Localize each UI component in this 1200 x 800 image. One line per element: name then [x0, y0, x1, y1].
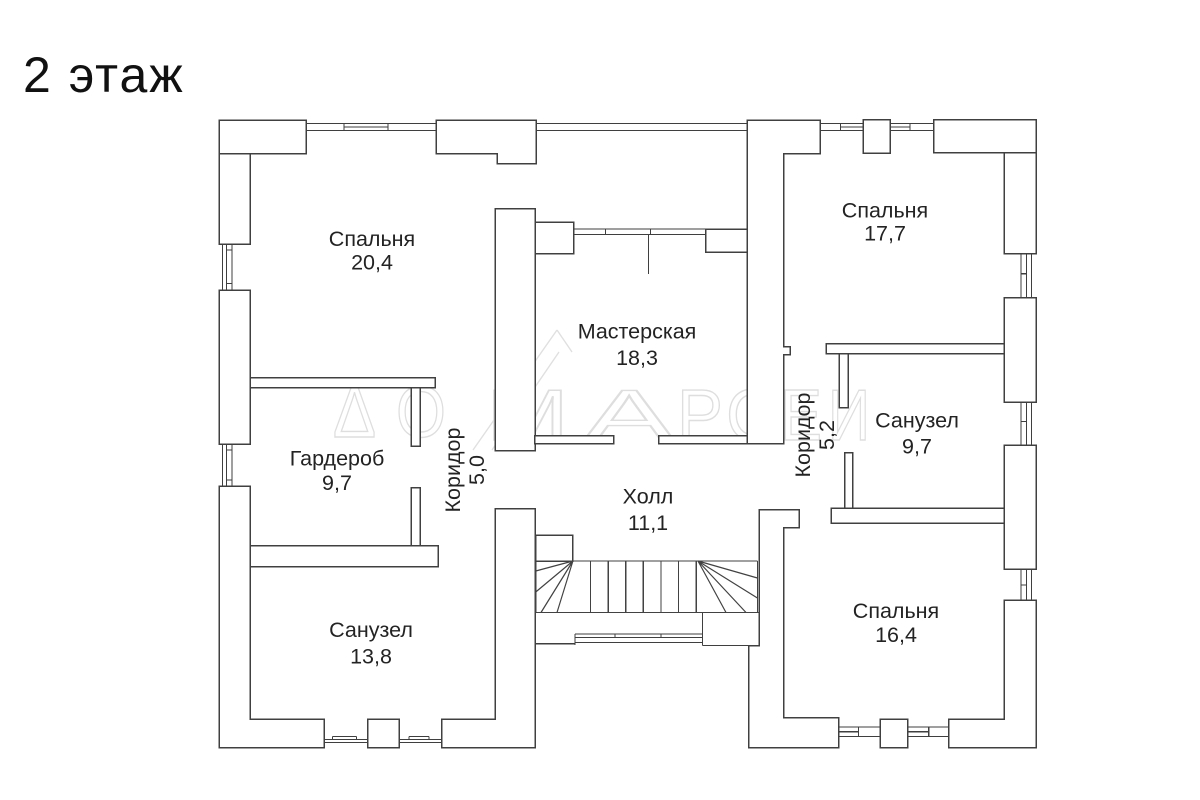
- svg-text:16,4: 16,4: [875, 623, 917, 647]
- svg-text:13,8: 13,8: [350, 644, 392, 668]
- svg-text:2 этаж: 2 этаж: [23, 47, 185, 103]
- svg-text:9,7: 9,7: [322, 471, 352, 495]
- svg-text:5,0: 5,0: [465, 455, 489, 485]
- svg-text:Санузел: Санузел: [875, 408, 959, 432]
- svg-text:11,1: 11,1: [628, 511, 668, 535]
- svg-text:Мастерская: Мастерская: [578, 320, 697, 344]
- svg-text:Спальня: Спальня: [329, 227, 415, 251]
- svg-text:Санузел: Санузел: [329, 618, 413, 642]
- svg-text:Спальня: Спальня: [853, 599, 939, 623]
- svg-text:Коридор: Коридор: [441, 428, 465, 513]
- svg-text:Коридор: Коридор: [791, 393, 815, 478]
- svg-text:20,4: 20,4: [351, 251, 393, 275]
- svg-text:18,3: 18,3: [616, 346, 658, 370]
- svg-text:17,7: 17,7: [864, 222, 906, 246]
- svg-text:5,2: 5,2: [815, 420, 839, 450]
- svg-text:Холл: Холл: [623, 484, 674, 508]
- svg-text:Гардероб: Гардероб: [290, 447, 385, 471]
- svg-text:Спальня: Спальня: [842, 199, 928, 223]
- svg-text:9,7: 9,7: [902, 434, 932, 458]
